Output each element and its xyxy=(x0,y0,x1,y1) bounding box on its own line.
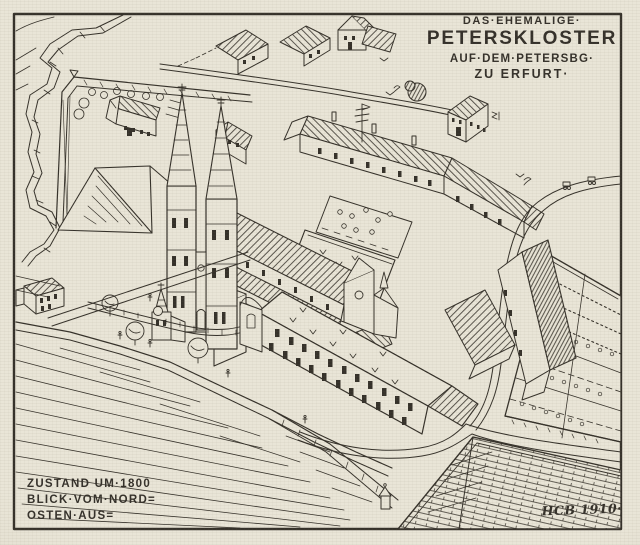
caption-block: ZUSTAND UM·1800 BLICK·VOM·NORD= OSTEN·AU… xyxy=(27,476,257,524)
caption-line-3: OSTEN·AUS= xyxy=(27,508,257,524)
title-line-4: ZU ERFURT· xyxy=(418,67,626,81)
village-houses-top xyxy=(216,16,396,74)
title-block: DAS·EHEMALIGE· PETERSKLOSTER AUF·DEM·PET… xyxy=(418,15,626,81)
caption-line-2: BLICK·VOM·NORD= xyxy=(27,492,257,508)
petersberg-birdseye-drawing xyxy=(0,0,640,545)
caption-line-1: ZUSTAND UM·1800 xyxy=(27,476,257,492)
artist-signature: HCB 1910· xyxy=(540,501,622,519)
title-line-2: PETERSKLOSTER xyxy=(418,28,626,50)
title-line-3: AUF·DEM·PETERSBG· xyxy=(418,53,626,65)
gate-house xyxy=(16,278,64,314)
detached-house xyxy=(448,96,499,142)
etching-page: DAS·EHEMALIGE· PETERSKLOSTER AUF·DEM·PET… xyxy=(0,0,640,545)
scribble-tree xyxy=(386,81,426,101)
title-line-1: DAS·EHEMALIGE· xyxy=(418,15,626,27)
curtain-wall xyxy=(268,410,398,509)
